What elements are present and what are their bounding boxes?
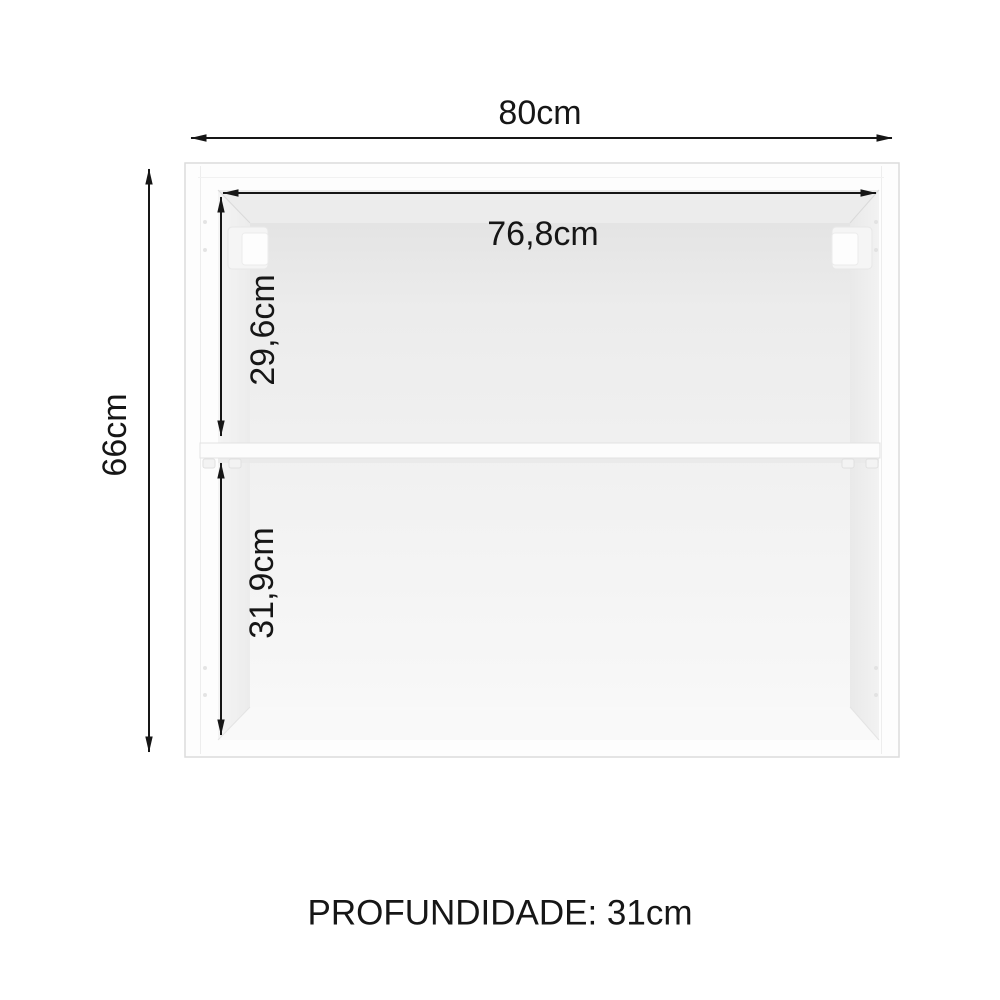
interior-floor — [218, 707, 879, 740]
pin-hole — [874, 248, 878, 252]
shelf-pin — [842, 459, 854, 468]
depth-caption: PROFUNDIDADE: 31cm — [307, 894, 692, 933]
shelf — [200, 443, 880, 458]
dimension-outer-width: 80cm — [191, 94, 892, 138]
furniture-dimension-diagram: 80cm 76,8cm 66cm 29,6cm 31,9cm PROFUNDID… — [0, 0, 1000, 1000]
dimension-label-outer-height: 66cm — [96, 393, 134, 476]
hinge-plate-right — [832, 227, 872, 269]
shelf-pin — [203, 459, 215, 468]
shelf-shadow — [218, 458, 879, 463]
pin-hole — [203, 220, 207, 224]
shelf-pin — [866, 459, 878, 468]
pin-hole — [874, 666, 878, 670]
pin-hole — [203, 693, 207, 697]
dimension-label-outer-width: 80cm — [498, 94, 581, 132]
pin-hole — [874, 220, 878, 224]
pin-hole — [203, 248, 207, 252]
shelf-pin — [229, 459, 241, 468]
dimension-label-lower-height: 31,9cm — [243, 527, 281, 639]
dimension-label-upper-height: 29,6cm — [244, 274, 282, 386]
dimension-outer-height: 66cm — [96, 169, 149, 752]
interior-back-panel — [250, 223, 850, 707]
pin-hole — [874, 693, 878, 697]
pin-hole — [203, 666, 207, 670]
cabinet-diagram-canvas: 80cm 76,8cm 66cm 29,6cm 31,9cm PROFUNDID… — [0, 0, 1000, 1000]
hinge-plate-left — [228, 227, 268, 269]
dimension-label-inner-width: 76,8cm — [487, 215, 599, 253]
